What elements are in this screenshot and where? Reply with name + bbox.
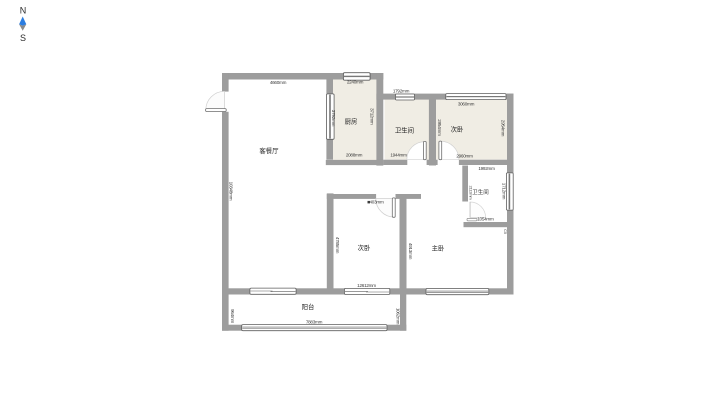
svg-text:4913mm: 4913mm: [408, 243, 413, 260]
svg-text:N: N: [20, 6, 27, 16]
svg-text:4785mm: 4785mm: [335, 237, 340, 254]
svg-text:403mm: 403mm: [369, 200, 383, 205]
svg-text:3712mm: 3712mm: [369, 108, 374, 125]
svg-text:卫生间: 卫生间: [472, 188, 489, 196]
svg-text:1944mm: 1944mm: [390, 153, 407, 158]
svg-text:1712mm: 1712mm: [502, 183, 507, 200]
svg-text:卫生间: 卫生间: [395, 126, 414, 135]
svg-text:次卧: 次卧: [358, 243, 371, 252]
svg-text:4660mm: 4660mm: [270, 80, 287, 85]
svg-text:2240mm: 2240mm: [347, 80, 364, 85]
svg-text:2960mm: 2960mm: [456, 154, 473, 159]
svg-text:2112mm: 2112mm: [468, 185, 473, 200]
svg-text:1792mm: 1792mm: [393, 88, 410, 93]
svg-text:12612mm: 12612mm: [357, 283, 376, 288]
svg-text:10348mm: 10348mm: [228, 182, 233, 201]
svg-text:厨房: 厨房: [345, 116, 358, 125]
svg-text:3792mm: 3792mm: [331, 110, 336, 127]
svg-text:2954mm: 2954mm: [437, 119, 442, 136]
svg-text:7883mm: 7883mm: [306, 320, 323, 325]
svg-text:2088mm: 2088mm: [346, 152, 363, 157]
svg-text:主卧: 主卧: [432, 244, 445, 253]
svg-text:1992mm: 1992mm: [478, 166, 495, 171]
svg-text:S: S: [20, 33, 26, 43]
svg-text:客餐厅: 客餐厅: [259, 146, 279, 155]
svg-text:964mm: 964mm: [230, 309, 235, 323]
svg-text:次卧: 次卧: [451, 125, 464, 134]
svg-text:1062mm: 1062mm: [396, 308, 401, 325]
svg-text:2954mm: 2954mm: [500, 120, 505, 137]
svg-text:3060mm: 3060mm: [458, 101, 475, 106]
svg-text:阳台: 阳台: [302, 302, 315, 311]
svg-text:1054mm: 1054mm: [477, 217, 494, 222]
